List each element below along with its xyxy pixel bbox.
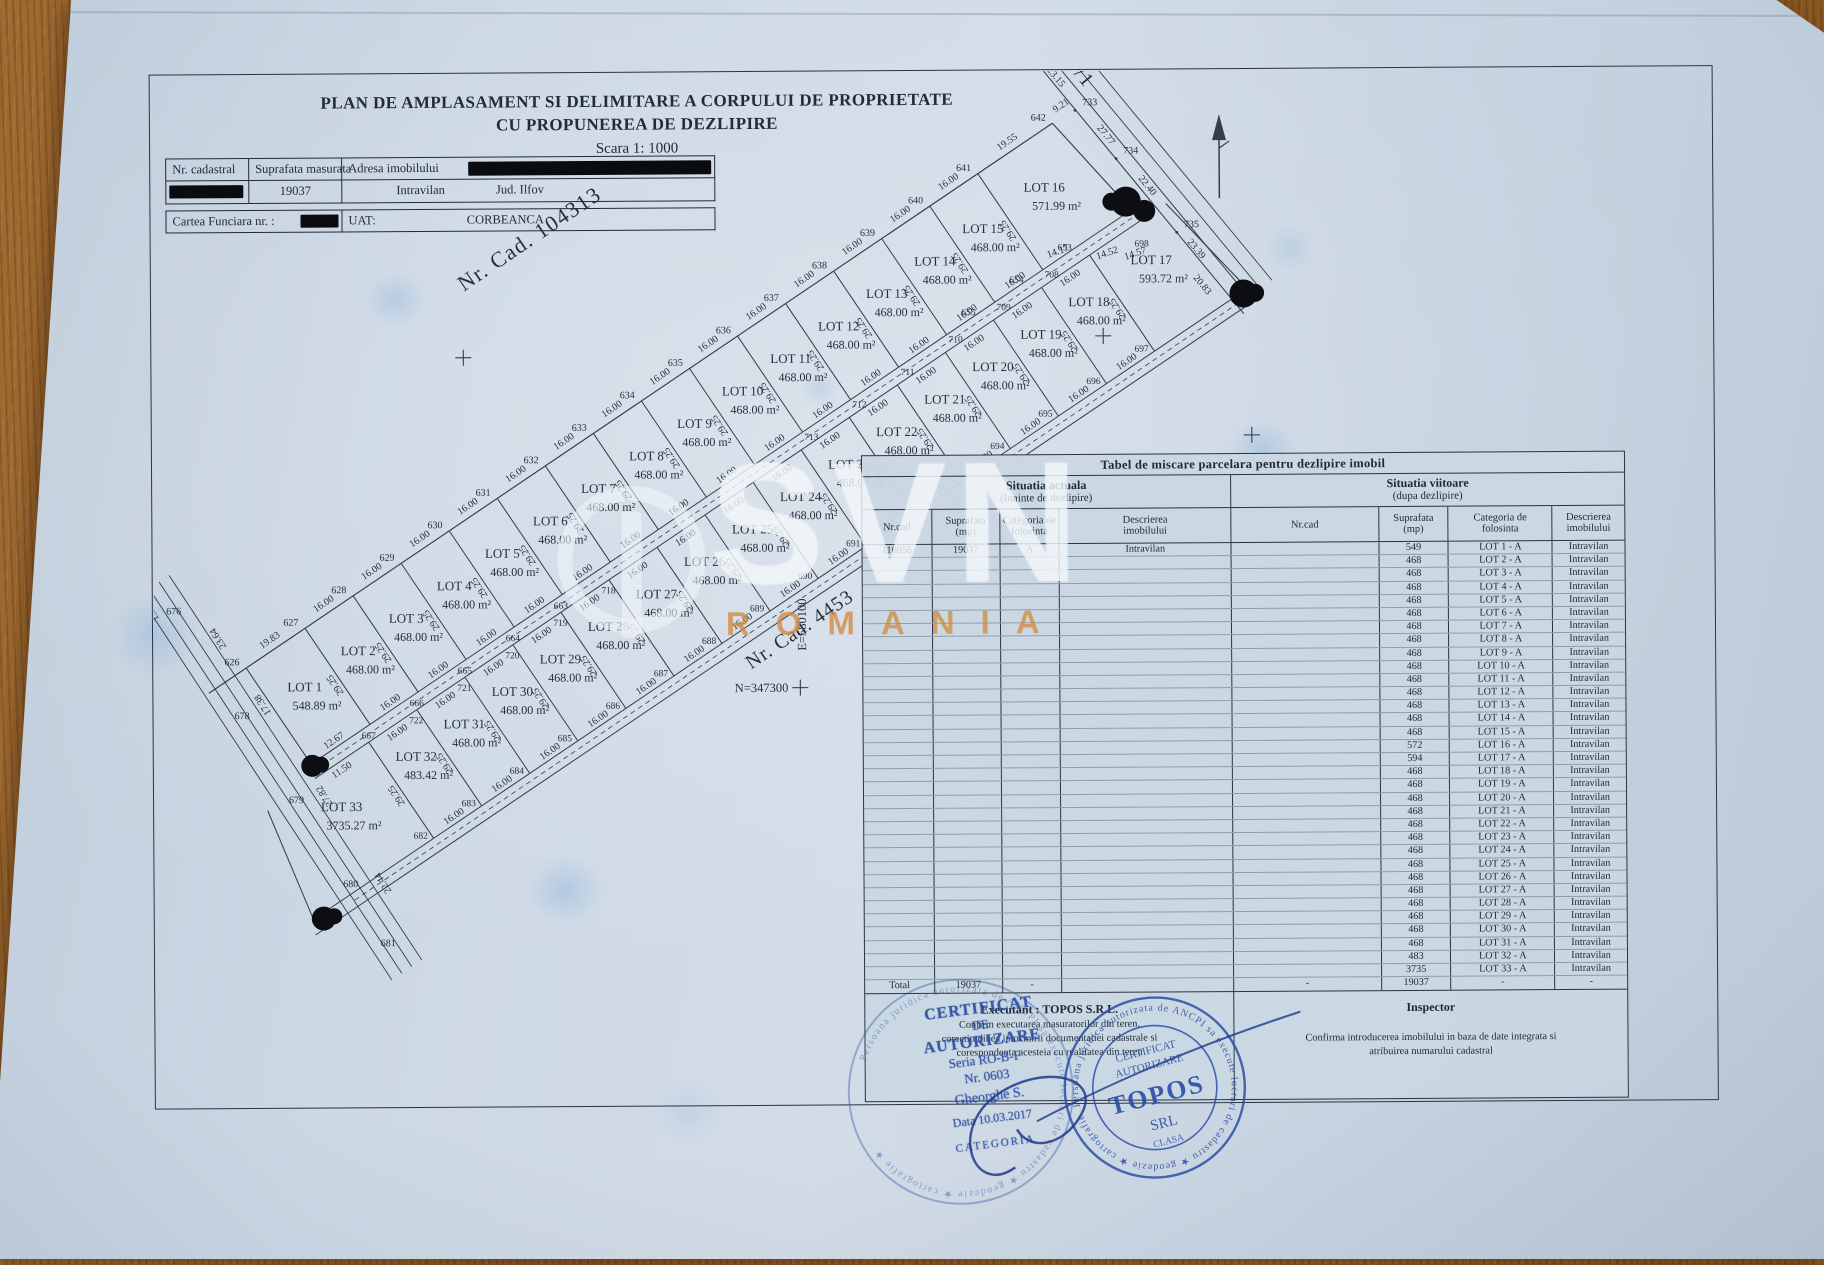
table-cell: [933, 610, 1001, 623]
table-cell: 468: [1380, 766, 1450, 779]
plan-line: [164, 575, 427, 959]
lot-label: LOT 15: [962, 221, 1003, 236]
table-cell: [932, 558, 1000, 571]
boundary-point-label: 629: [379, 553, 394, 564]
table-cell: [864, 743, 934, 756]
table-cell: [1001, 663, 1061, 676]
lot-label: LOT 22: [876, 424, 917, 439]
table-cell: [1002, 874, 1062, 887]
table-cell: [1002, 927, 1062, 940]
table-cell: [933, 650, 1001, 663]
lot-area-label: 468.00 m²: [538, 532, 587, 546]
boundary-point-label: 735: [1184, 219, 1199, 230]
table-cell: LOT 22 - A: [1451, 818, 1555, 831]
boundary-point-label: 633: [572, 423, 587, 434]
dimension-label: 16.00: [792, 269, 817, 291]
table-cell: LOT 13 - A: [1450, 699, 1554, 712]
table-cell: [1233, 714, 1381, 727]
table-cell: [934, 835, 1002, 848]
plan-line: [1219, 141, 1229, 148]
table-cell: Intravilan: [1553, 580, 1625, 593]
table-cell: [1062, 807, 1234, 820]
lot-area-label: 468.00 m²: [778, 370, 827, 384]
table-cell: [1062, 860, 1234, 873]
table-cell: [863, 624, 933, 637]
boundary-point-label: 718: [601, 586, 616, 596]
table-cell: 468: [1380, 687, 1450, 700]
table-cell: Intravilan: [1555, 949, 1627, 962]
table-cell: [1001, 716, 1061, 729]
table-cell: LOT 12 - A: [1450, 686, 1554, 699]
lot-label: LOT 30: [492, 684, 533, 699]
table-cell: Intravilan: [1555, 910, 1627, 923]
table-cell: [934, 848, 1002, 861]
table-cell: [1062, 846, 1234, 859]
dimension-label: 16.00: [407, 528, 432, 550]
boundary-point-label: 638: [812, 260, 827, 271]
table-cell: [864, 809, 934, 822]
table-cell: LOT 25 - A: [1451, 858, 1555, 871]
table-cell: [1002, 808, 1062, 821]
table-cell: [864, 729, 934, 742]
table-cell: Intravilan: [1554, 765, 1626, 778]
table-cell: [1234, 925, 1382, 938]
table-cell: 468: [1381, 885, 1451, 898]
dimension-label: 22.44: [373, 870, 394, 895]
boundary-point-label: 639: [860, 228, 875, 239]
table-cell: Intravilan: [1553, 607, 1625, 620]
boundary-point-label: 722: [409, 716, 424, 726]
info-col-adresa-label: Adresa imobilului: [348, 161, 439, 176]
table-cell: [1060, 556, 1232, 569]
lot-area-label: 593.72 m²: [1139, 271, 1188, 285]
boundary-point-label: 720: [505, 651, 520, 661]
boundary-point-label: 713: [804, 433, 819, 443]
table-cell: 468: [1381, 779, 1451, 792]
lot-area-label: 468.00 m²: [971, 240, 1020, 254]
table-cell: LOT 18 - A: [1450, 765, 1554, 778]
dimension-label: 16.00: [625, 560, 650, 582]
table-cell: [1062, 939, 1234, 952]
boundary-point-label: 686: [606, 702, 621, 712]
table-cell: [934, 769, 1002, 782]
table-cell: [1232, 555, 1380, 568]
table-cell: [864, 822, 934, 835]
boundary-point-label: 689: [750, 604, 765, 614]
lot-label: LOT 24: [780, 489, 822, 504]
dimension-label: 16.00: [504, 463, 529, 485]
lot-label: LOT 29: [540, 651, 581, 666]
lot-label: LOT 2: [341, 643, 376, 658]
boundary-point-label: 697: [1134, 344, 1149, 354]
table-cell: [934, 821, 1002, 834]
table-cell: -: [1452, 976, 1556, 990]
boundary-point-label: 641: [956, 163, 971, 174]
col-categoria-current: Categoria defolosinta: [1000, 509, 1060, 543]
table-cell: LOT 10 - A: [1450, 660, 1554, 673]
table-cell: LOT 27 - A: [1451, 884, 1555, 897]
table-cell: [864, 716, 934, 729]
table-cell: 468: [1380, 608, 1450, 621]
table-cell: [932, 571, 1000, 584]
info-val-nr-cadastral: [165, 181, 249, 205]
movement-table-body: 11005619037AIntravilan549LOT 1 - AIntrav…: [862, 541, 1627, 994]
table-cell: [1061, 754, 1233, 767]
table-cell: [1060, 609, 1232, 622]
dimension-label: 16.00: [552, 431, 577, 453]
table-cell: [1232, 621, 1380, 634]
table-cell: [1060, 569, 1232, 582]
cf-uat-cell: UAT: CORBEANCA: [342, 207, 715, 232]
inspector-title: Inspector: [1234, 999, 1627, 1016]
table-cell: 483: [1382, 951, 1452, 964]
table-cell: [1234, 898, 1382, 911]
table-cell: 468: [1380, 726, 1450, 739]
table-cell: [1060, 622, 1232, 635]
table-cell: LOT 26 - A: [1451, 871, 1555, 884]
lot-area-label: 468.00 m²: [394, 630, 443, 644]
lot-label: LOT 11: [770, 351, 811, 366]
boundary-point-label: 688: [702, 637, 717, 647]
boundary-point-label: 627: [283, 618, 298, 629]
boundary-point-label: 630: [427, 520, 442, 531]
lot-label: LOT 31: [444, 716, 485, 731]
table-cell: [1232, 608, 1380, 621]
movement-table-column-headers: Nr.cad Suprafata(mp) Categoria defolosin…: [862, 506, 1624, 546]
table-cell: [1061, 701, 1233, 714]
table-cell: [863, 703, 933, 716]
cf-row: Cartea Funciara nr. : UAT: CORBEANCA: [165, 207, 715, 233]
dimension-label: 16.00: [866, 397, 891, 419]
info-val-adresa: Intravilan Jud. Ilfov: [342, 178, 715, 203]
lot-label: LOT 19: [1020, 326, 1061, 341]
info-table-value-row: 19037 Intravilan Jud. Ilfov: [165, 178, 715, 204]
table-cell: [1233, 740, 1381, 753]
table-cell: [1233, 819, 1381, 832]
table-cell: 468: [1379, 555, 1449, 568]
table-cell: Intravilan: [1553, 541, 1625, 554]
boundary-point-label: 676: [166, 606, 181, 617]
boundary-point-label: 632: [524, 455, 539, 466]
table-cell: [1003, 940, 1063, 953]
boundary-point-label: 628: [331, 585, 346, 596]
col-suprafata-future: Suprafata(mp): [1379, 507, 1449, 541]
lot-label: LOT 16: [1024, 179, 1066, 194]
document-subtitle: CU PROPUNEREA DE DEZLIPIRE: [167, 112, 1107, 138]
lot-label: LOT 9: [677, 416, 712, 431]
col-nrcad-current: Nr.cad: [862, 510, 932, 544]
col-descriere-future: Descriereaimobilului: [1552, 506, 1624, 540]
table-cell: [933, 624, 1001, 637]
table-cell: Intravilan: [1554, 791, 1626, 804]
table-cell: [1233, 832, 1381, 845]
table-cell: LOT 28 - A: [1451, 897, 1555, 910]
boundary-point-label: 708: [1045, 271, 1060, 281]
lot-area-label: 468.00 m²: [923, 273, 972, 287]
dimension-label: 1.02: [143, 602, 162, 623]
table-cell: Intravilan: [1555, 857, 1627, 870]
table-cell: [1003, 966, 1063, 979]
table-cell: [1232, 569, 1380, 582]
cf-label-cell: Cartea Funciara nr. :: [165, 209, 342, 233]
table-cell: [1234, 964, 1382, 977]
table-cell: [1234, 911, 1382, 924]
boundary-point-label: 678: [235, 711, 250, 722]
boundary-point-label: 683: [462, 799, 477, 809]
lot-area-label: 3735.27 m²: [326, 818, 381, 832]
table-cell: [1001, 755, 1061, 768]
lot-label: LOT 18: [1068, 294, 1109, 309]
table-cell: [1234, 951, 1382, 964]
table-cell: 3735: [1382, 964, 1452, 977]
inspector-cell: Inspector Confirma introducerea imobilul…: [1234, 990, 1628, 1099]
table-cell: Intravilan: [1555, 963, 1627, 976]
table-cell: [1061, 741, 1233, 754]
table-cell: [1232, 674, 1380, 687]
boundary-point-label: 709: [996, 303, 1011, 313]
table-cell: [933, 676, 1001, 689]
table-cell: Intravilan: [1555, 844, 1627, 857]
table-cell: [1002, 861, 1062, 874]
table-cell: [934, 861, 1002, 874]
table-cell: [934, 887, 1002, 900]
table-cell: [863, 650, 933, 663]
table-cell: [1061, 635, 1233, 648]
table-cell: [1061, 780, 1233, 793]
boundary-point-label: 721: [457, 684, 472, 694]
table-cell: [1062, 952, 1234, 965]
table-cell: 468: [1381, 898, 1451, 911]
table-cell: 468: [1380, 634, 1450, 647]
table-cell: LOT 15 - A: [1450, 726, 1554, 739]
table-cell: Intravilan: [1554, 712, 1626, 725]
table-cell: [1233, 727, 1381, 740]
title-block: PLAN DE AMPLASAMENT SI DELIMITARE A CORP…: [167, 89, 1107, 161]
cf-label: Cartea Funciara nr. :: [172, 214, 274, 229]
dimension-label: 16.00: [722, 495, 747, 517]
situatia-actuala-header: Situatia actuala (Inainte de dezlipire): [862, 475, 1231, 509]
dimension-label: 16.00: [888, 204, 913, 226]
table-cell: [1061, 794, 1233, 807]
lot-area-label: 468.00 m²: [442, 597, 491, 611]
dimension-label: 16.00: [311, 593, 336, 615]
table-cell: 468: [1381, 832, 1451, 845]
uat-value: CORBEANCA: [467, 212, 544, 226]
table-cell: 468: [1381, 819, 1451, 832]
east-coordinate-label: E=580100: [795, 598, 809, 650]
table-cell: [864, 875, 934, 888]
table-cell: LOT 6 - A: [1449, 607, 1553, 620]
table-cell: LOT 8 - A: [1449, 633, 1553, 646]
table-cell: LOT 20 - A: [1450, 792, 1554, 805]
boundary-point-label: 682: [414, 832, 429, 842]
lot-label: LOT 3: [389, 611, 424, 626]
table-cell: [934, 901, 1002, 914]
table-cell: 468: [1380, 621, 1450, 634]
table-cell: [864, 756, 934, 769]
table-cell: [1062, 833, 1234, 846]
redaction-bar: [169, 185, 243, 198]
dimension-label: 16.00: [456, 496, 481, 518]
table-cell: [863, 611, 933, 624]
table-cell: LOT 29 - A: [1451, 910, 1555, 923]
table-cell: [1062, 820, 1234, 833]
table-cell: [1060, 596, 1232, 609]
dimension-label: 16.00: [936, 171, 961, 193]
dimension-label: 16.00: [770, 462, 795, 484]
lot-label: LOT 21: [924, 391, 965, 406]
table-cell: 110056: [862, 545, 932, 558]
table-cell: [863, 664, 933, 677]
lot-label: LOT 25: [732, 521, 773, 536]
dimension-label: 16.00: [481, 657, 506, 679]
lot-area-label: 468.00 m²: [827, 337, 876, 351]
table-cell: [1233, 780, 1381, 793]
table-cell: LOT 2 - A: [1449, 554, 1553, 567]
info-table-header-row: Nr. cadastral Suprafata masurata Adresa …: [165, 155, 715, 181]
table-cell: [1001, 742, 1061, 755]
table-cell: Intravilan: [1553, 673, 1625, 686]
uat-label: UAT:: [348, 213, 375, 227]
table-cell: [863, 677, 933, 690]
table-cell: [865, 927, 935, 940]
boundary-point-label: 679: [289, 795, 304, 806]
table-cell: 468: [1381, 911, 1451, 924]
table-cell: [1061, 662, 1233, 675]
table-cell: [1234, 938, 1382, 951]
table-cell: Intravilan: [1555, 897, 1627, 910]
table-cell: [935, 927, 1003, 940]
dimension-label: 14.52: [1095, 245, 1120, 263]
table-cell: [933, 637, 1001, 650]
table-cell: [1002, 887, 1062, 900]
table-cell: [1232, 582, 1380, 595]
lot-area-label: 571.99 m²: [1032, 199, 1081, 213]
table-cell: [1002, 795, 1062, 808]
table-cell: 468: [1381, 845, 1451, 858]
table-cell: [935, 940, 1003, 953]
table-cell: [1061, 714, 1233, 727]
table-cell: [933, 597, 1001, 610]
col-descriere-current: Descriereaimobilului: [1060, 508, 1232, 543]
lot-label: LOT 20: [972, 359, 1013, 374]
table-cell: LOT 23 - A: [1451, 831, 1555, 844]
table-cell: [1002, 913, 1062, 926]
table-cell: Intravilan: [1553, 646, 1625, 659]
table-cell: [1000, 597, 1060, 610]
table-cell: [934, 782, 1002, 795]
table-cell: [864, 795, 934, 808]
table-cell: [1000, 570, 1060, 583]
cf-table: Cartea Funciara nr. : UAT: CORBEANCA: [165, 207, 715, 233]
table-cell: 468: [1380, 700, 1450, 713]
table-cell: [934, 874, 1002, 887]
table-cell: -: [1234, 977, 1382, 991]
table-cell: [1001, 676, 1061, 689]
table-cell: [863, 558, 933, 571]
table-cell: Intravilan: [1553, 567, 1625, 580]
lot-area-label: 468.00 m²: [875, 305, 924, 319]
table-cell: [1001, 768, 1061, 781]
situatia-viitoare-sub: (dupa dezlipire): [1231, 489, 1624, 504]
table-cell: LOT 17 - A: [1450, 752, 1554, 765]
table-cell: LOT 32 - A: [1451, 950, 1555, 963]
dimension-label: 23.64: [208, 626, 229, 651]
boundary-point-label: 691: [846, 539, 861, 549]
table-cell: Intravilan: [1555, 936, 1627, 949]
situatia-viitoare-header: Situatia viitoare (dupa dezlipire): [1231, 473, 1624, 507]
table-cell: [864, 848, 934, 861]
table-cell: [1062, 886, 1234, 899]
north-arrow: [1212, 114, 1230, 198]
boundary-point-label: 631: [476, 488, 491, 499]
boundary-point-label: 681: [381, 938, 396, 949]
table-cell: [1002, 834, 1062, 847]
table-cell: Intravilan: [1555, 884, 1627, 897]
boundary-point-label: 635: [668, 358, 683, 369]
lot-area-label: 468.00 m²: [730, 402, 779, 416]
table-cell: LOT 7 - A: [1449, 620, 1553, 633]
plan-line: [154, 582, 417, 966]
table-cell: [1232, 700, 1380, 713]
table-cell: [1061, 688, 1233, 701]
dimension-label: 16.00: [529, 625, 554, 647]
info-col-adresa: Adresa imobilului: [342, 155, 715, 180]
dimension-label: 11.50: [330, 760, 355, 782]
table-cell: LOT 5 - A: [1449, 594, 1553, 607]
table-cell: [863, 637, 933, 650]
dimension-label: 16.00: [648, 366, 673, 388]
table-cell: 468: [1381, 858, 1451, 871]
table-cell: [1233, 806, 1381, 819]
table-cell: LOT 16 - A: [1450, 739, 1554, 752]
table-cell: 594: [1380, 753, 1450, 766]
table-cell: [933, 703, 1001, 716]
lot-label: LOT 10: [722, 383, 763, 398]
boundary-point-label: 634: [620, 390, 635, 401]
lot-label: LOT 32: [396, 749, 437, 764]
dimension-label: 23.15: [1044, 65, 1067, 89]
table-cell: [1232, 687, 1380, 700]
table-cell: LOT 11 - A: [1450, 673, 1554, 686]
dimension-label: 16.00: [1058, 267, 1083, 289]
redaction-bar: [468, 160, 711, 175]
table-cell: [1062, 925, 1234, 938]
table-cell: [1061, 649, 1233, 662]
boundary-point-label: 663: [554, 602, 569, 612]
table-cell: Intravilan: [1553, 593, 1625, 606]
boundary-point-label: 685: [558, 734, 573, 744]
table-cell: [934, 795, 1002, 808]
dimension-label: 22.40: [1136, 174, 1159, 198]
boundary-point-label: 664: [506, 634, 521, 644]
north-coordinate-label: N=347300: [735, 681, 789, 695]
paper-sheet: PLAN DE AMPLASAMENT SI DELIMITARE A CORP…: [0, 0, 1824, 1259]
boundary-point-label: 626: [225, 657, 240, 668]
table-cell: A: [1000, 544, 1060, 557]
boundary-point-label: 719: [553, 619, 568, 629]
table-cell: Intravilan: [1554, 686, 1626, 699]
inspector-line: atribuirea numarului cadastral: [1235, 1044, 1628, 1059]
dimension-label: 16.00: [385, 722, 410, 744]
table-cell: 468: [1381, 871, 1451, 884]
boundary-point-label: 690: [798, 572, 813, 582]
table-cell: 468: [1379, 581, 1449, 594]
table-cell: LOT 33 - A: [1452, 963, 1556, 976]
table-cell: Intravilan: [1554, 778, 1626, 791]
table-cell: LOT 14 - A: [1450, 713, 1554, 726]
table-cell: 549: [1379, 542, 1449, 555]
